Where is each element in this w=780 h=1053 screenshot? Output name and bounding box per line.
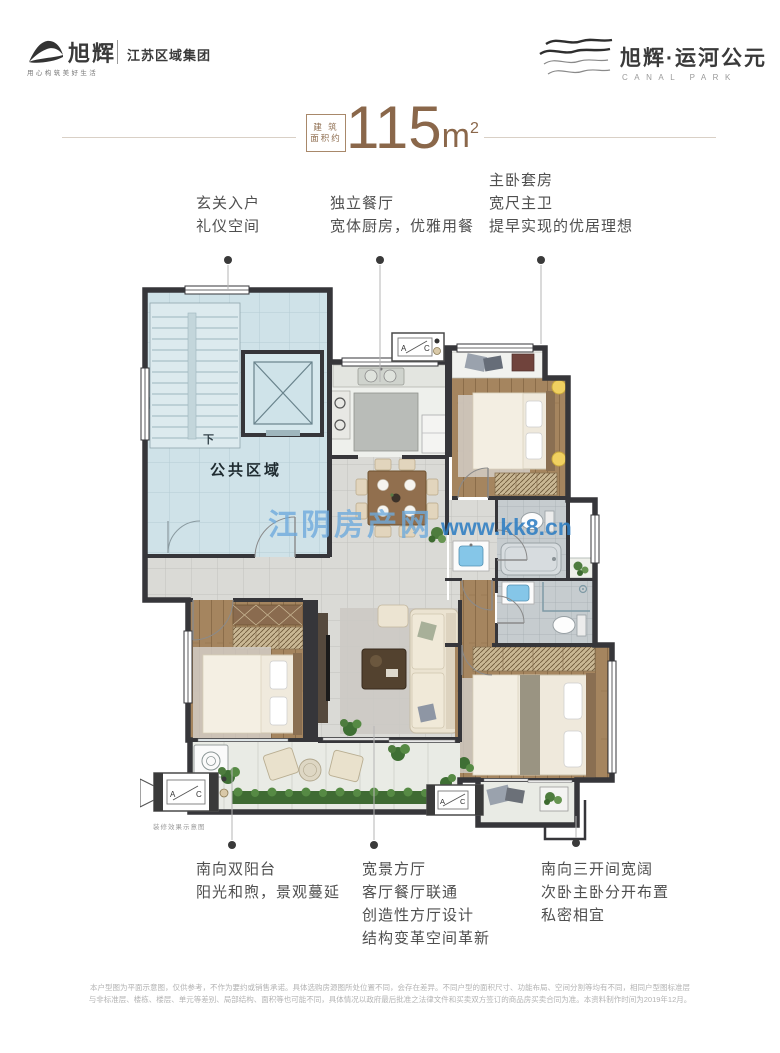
bed <box>203 653 302 735</box>
floorplan-drawing: A C A C A C 公共区域 下 装修效果示意图 <box>140 283 618 843</box>
annotation-line: 宽尺主卫 <box>489 192 633 215</box>
downlight <box>552 452 566 466</box>
downlight <box>552 380 566 394</box>
disclaimer: 本户型图为平面示意图，仅供参考，不作为要约或销售承诺。具体选购房源图所处位置不同… <box>70 982 710 1006</box>
svg-text:C: C <box>424 344 430 353</box>
refrigerator <box>422 415 446 453</box>
bay-window-seat <box>452 352 545 378</box>
project-name: 旭辉·运河公元 <box>620 42 767 72</box>
annotation-line: 私密相宜 <box>541 904 669 927</box>
annotation-line: 客厅餐厅联通 <box>362 881 490 904</box>
annotation-line: 提早实现的优居理想 <box>489 215 633 238</box>
foyer-floor <box>145 557 330 600</box>
bath-hall <box>453 541 489 571</box>
bedroom-north <box>452 352 568 497</box>
title-rule-left <box>62 137 296 138</box>
annotation-living-hall: 宽景方厅 客厅餐厅联通 创造性方厅设计 结构变革空间革新 <box>362 858 490 950</box>
annotation-entry: 玄关入户 礼仪空间 <box>196 192 260 238</box>
guest-bathroom <box>497 500 568 580</box>
brand-tagline: 用心构筑美好生活 <box>27 67 98 77</box>
annotation-line: 南向三开间宽阔 <box>541 858 669 881</box>
annotation-line: 阳光和煦，景观蔓延 <box>196 881 340 904</box>
cifi-mountain-icon <box>26 38 66 64</box>
sofa <box>410 609 458 733</box>
kitchen-sink <box>358 368 404 386</box>
annotation-line: 独立餐厅 <box>330 192 474 215</box>
annotation-line: 玄关入户 <box>196 192 260 215</box>
area-label-box: 建 筑 面积约 <box>306 114 346 152</box>
brand-name: 旭辉 <box>68 36 116 68</box>
area-label-line2: 面积约 <box>310 133 342 144</box>
annotation-balcony: 南向双阳台 阳光和煦，景观蔓延 <box>196 858 340 904</box>
area-label-line1: 建 筑 <box>313 122 338 133</box>
disclaimer-line2: 与非标准层、楼栋、楼层、单元等差别、局部结构、面积等也可能不同，具体情况以政府最… <box>70 994 710 1006</box>
brand-division: 江苏区域集团 <box>127 45 211 64</box>
elevator <box>243 352 322 436</box>
vanity-sink <box>453 541 489 571</box>
header-divider <box>117 40 118 64</box>
wardrobe <box>495 473 557 495</box>
armchair <box>378 605 408 627</box>
wardrobe <box>233 627 303 649</box>
svg-text:C: C <box>460 797 466 806</box>
annotation-dining: 独立餐厅 宽体厨房，优雅用餐 <box>330 192 474 238</box>
public-area <box>142 290 330 557</box>
area-value: 115 <box>346 100 442 156</box>
title-rule-right <box>484 137 716 138</box>
floorplan-poster: { "header": { "brand_left": { "name": "旭… <box>0 0 780 1053</box>
coffee-table <box>362 649 406 689</box>
annotation-line: 礼仪空间 <box>196 215 260 238</box>
kitchen-island <box>354 393 418 451</box>
stairs <box>142 303 240 448</box>
annotation-master-suite: 主卧套房 宽尺主卫 提早实现的优居理想 <box>489 169 633 238</box>
plant-nook <box>569 558 593 578</box>
living-room <box>318 600 460 740</box>
svg-text:A: A <box>170 790 176 799</box>
vanity-sink <box>502 582 534 604</box>
stove <box>330 391 350 439</box>
annotation-line: 结构变革空间革新 <box>362 927 490 950</box>
project-subtitle: CANAL PARK <box>622 73 737 82</box>
public-area-label: 公共区域 <box>210 461 282 479</box>
annotation-line: 次卧主卧分开布置 <box>541 881 669 904</box>
planter-box <box>540 787 568 811</box>
ac-platform-left: A C <box>140 773 228 811</box>
area-unit-sup: 2 <box>470 120 479 138</box>
canal-waves-icon <box>538 34 616 82</box>
annotation-bedrooms: 南向三开间宽阔 次卧主卧分开布置 私密相宜 <box>541 858 669 927</box>
bed <box>473 673 596 777</box>
bedroom-second <box>188 600 303 740</box>
storage-cabinet <box>233 605 303 625</box>
master-balcony <box>478 780 577 825</box>
ac-platform-top: A C <box>392 333 444 361</box>
bathtub <box>501 543 561 575</box>
area-title: 建 筑 面积约 115m2 <box>306 100 479 156</box>
annotation-line: 创造性方厅设计 <box>362 904 490 927</box>
master-bedroom <box>455 645 612 780</box>
svg-text:A: A <box>440 797 445 806</box>
bed <box>473 391 555 471</box>
stairs-down-label: 下 <box>203 433 214 446</box>
master-corridor <box>460 580 495 645</box>
annotation-line: 主卧套房 <box>489 169 633 192</box>
area-unit: m <box>442 117 470 156</box>
annotation-line: 宽景方厅 <box>362 858 490 881</box>
decor-caption: 装修效果示意图 <box>153 822 206 831</box>
ac-platform-middle: A C <box>427 785 483 815</box>
kitchen <box>330 362 447 457</box>
master-bathroom <box>497 580 595 645</box>
disclaimer-line1: 本户型图为平面示意图，仅供参考，不作为要约或销售承诺。具体选购房源图所处位置不同… <box>70 982 710 994</box>
wardrobe <box>473 647 595 671</box>
svg-text:A: A <box>401 344 407 353</box>
south-balcony <box>190 740 460 812</box>
svg-text:C: C <box>196 790 202 799</box>
annotation-line: 宽体厨房，优雅用餐 <box>330 215 474 238</box>
annotation-line: 南向双阳台 <box>196 858 340 881</box>
